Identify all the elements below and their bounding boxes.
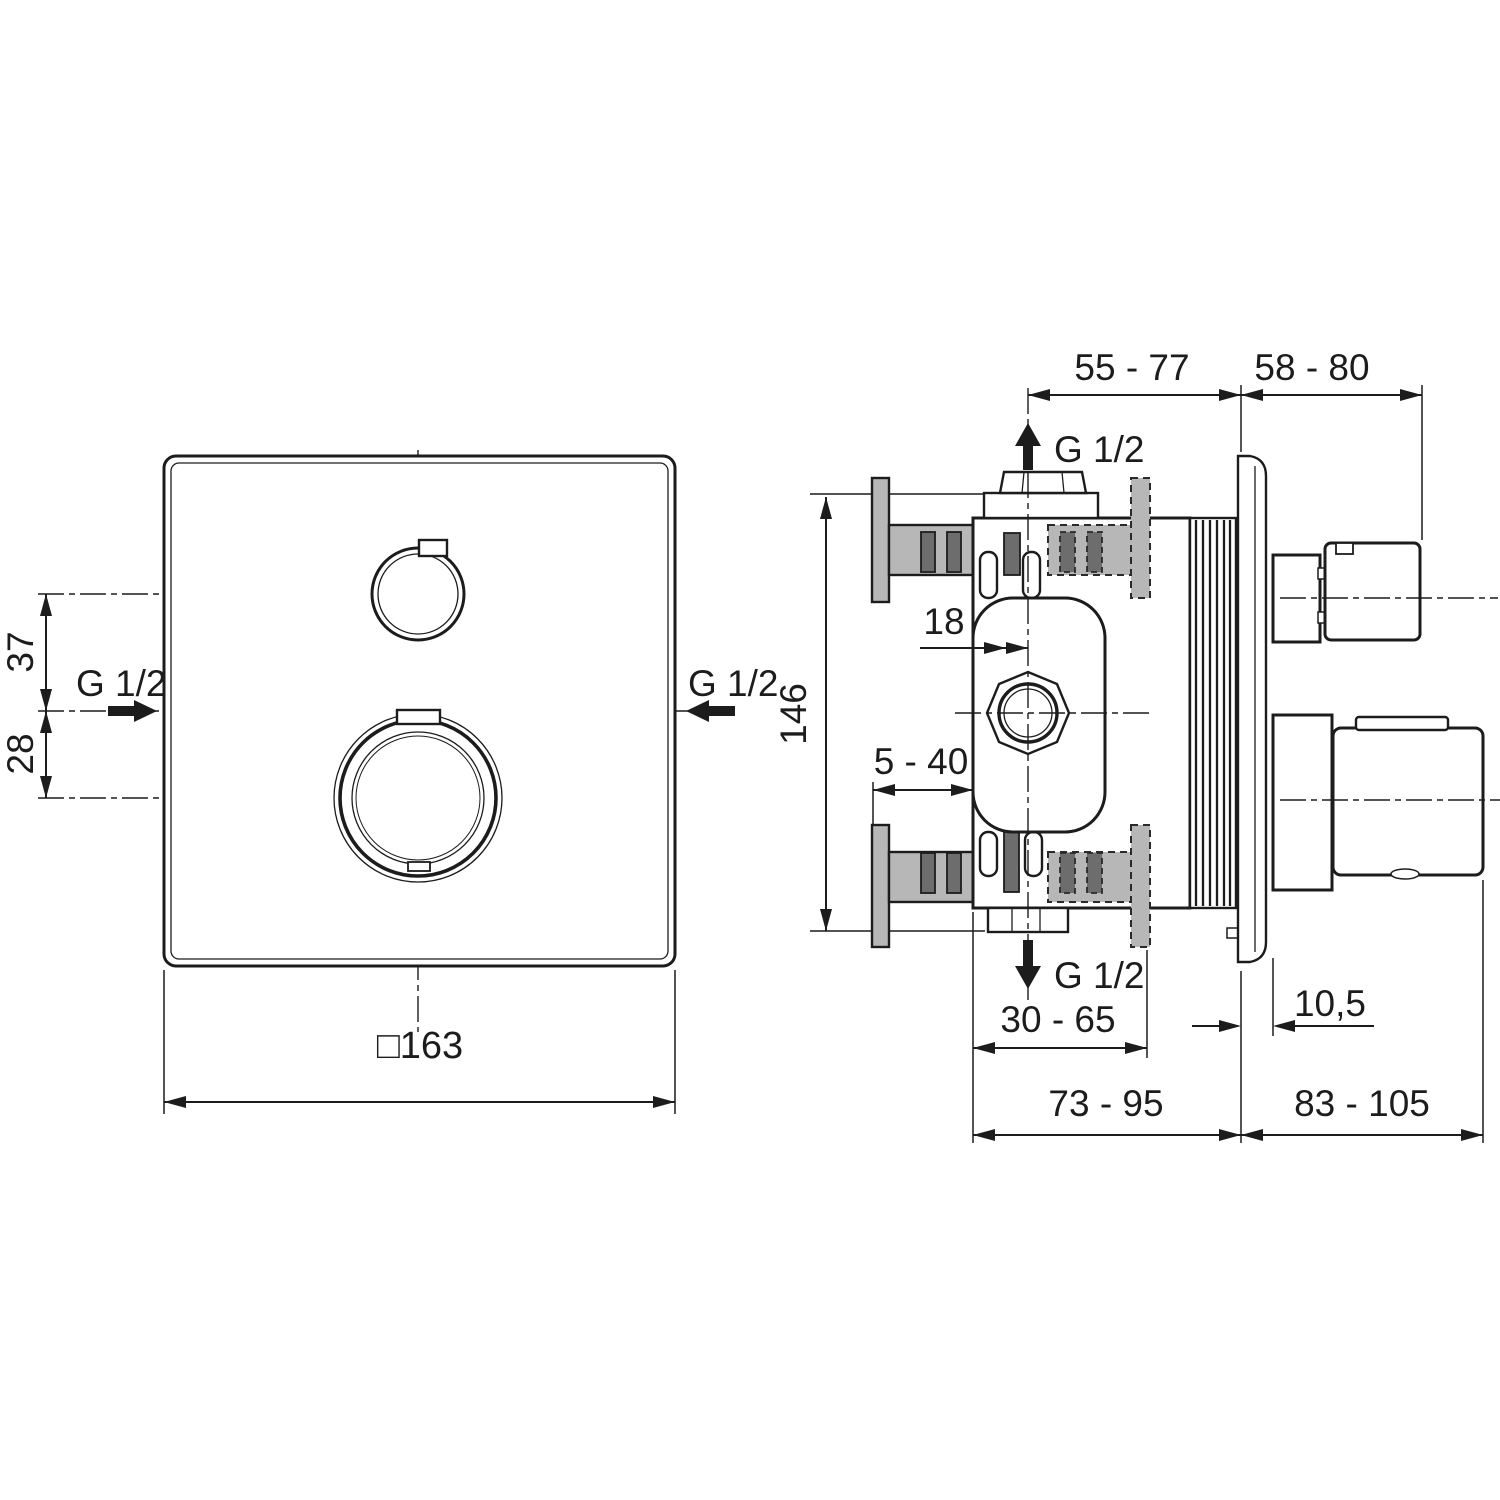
- lower-handle-grip: [1333, 728, 1483, 875]
- dim-label-58-80: 58 - 80: [1254, 347, 1369, 388]
- dim-label-30-65: 30 - 65: [1000, 999, 1115, 1040]
- lower-handle-stem: [1273, 715, 1332, 890]
- left-inlet-label: G 1/2: [76, 663, 167, 704]
- right-inlet-arrow-icon: [707, 706, 735, 716]
- top-outlet-connector: [984, 472, 1098, 518]
- lower-handle-clip: [1356, 717, 1448, 730]
- top-outlet-label: G 1/2: [1054, 429, 1145, 470]
- lower-knob-index-tab: [397, 710, 440, 724]
- front-view: 37 28 G 1/2 G 1/2 □163: [0, 450, 779, 1114]
- bracket-flange-right-top: [1131, 478, 1150, 598]
- thermostatic-mixer-dimension-drawing: 37 28 G 1/2 G 1/2 □163: [0, 0, 1500, 1500]
- dim-rough-in-depth: 55 - 77: [1028, 347, 1241, 401]
- mounting-bracket-top: [872, 478, 973, 602]
- right-inlet: G 1/2: [686, 663, 779, 722]
- dim-label-55-77: 55 - 77: [1074, 347, 1189, 388]
- threaded-collar: [1190, 518, 1236, 908]
- upper-handle: [1273, 543, 1420, 642]
- valve-body: [973, 472, 1190, 947]
- dim-label-163: □163: [377, 1025, 463, 1067]
- dim-body-height: 146: [773, 497, 832, 931]
- dim-plaster-depth: 5 - 40: [873, 741, 973, 796]
- technical-drawing-page: 37 28 G 1/2 G 1/2 □163: [0, 0, 1500, 1500]
- dim-body-depth: 30 - 65: [973, 999, 1147, 1054]
- upper-handle-grip: [1325, 543, 1420, 640]
- dim-inlet-offset: 28: [0, 711, 52, 798]
- left-inlet-arrow-icon: [108, 706, 136, 716]
- bracket-flange-left-top: [872, 478, 889, 602]
- dim-label-83-105: 83 - 105: [1294, 1083, 1430, 1124]
- upper-knob-index-tab: [419, 540, 447, 556]
- dim-label-28: 28: [0, 733, 41, 774]
- dim-upper-knob-offset: 37: [0, 594, 52, 711]
- dim-plate-width: □163: [164, 970, 675, 1114]
- dim-label-146: 146: [773, 683, 814, 745]
- top-outlet: G 1/2: [1015, 423, 1145, 470]
- bottom-outlet-label: G 1/2: [1054, 955, 1145, 996]
- right-inlet-label: G 1/2: [688, 663, 779, 704]
- dim-label-5-40: 5 - 40: [874, 741, 969, 782]
- bottom-outlet-arrow-icon: [1023, 940, 1033, 967]
- dim-trim-depth: 58 - 80: [1241, 347, 1422, 401]
- dim-label-37: 37: [0, 631, 41, 672]
- lower-handle: [1273, 715, 1483, 890]
- lower-knob-bottom-notch: [408, 862, 430, 871]
- dim-label-18: 18: [923, 601, 964, 642]
- mounting-bracket-bottom: [872, 825, 973, 947]
- dim-label-10-5: 10,5: [1294, 983, 1366, 1024]
- top-outlet-arrow-icon: [1023, 444, 1033, 470]
- dim-total-rough-depth: 73 - 95: [973, 1083, 1241, 1141]
- dim-total-trim-depth: 83 - 105: [1241, 1083, 1483, 1141]
- bracket-flange-right-bottom: [1131, 825, 1150, 947]
- side-view: 55 - 77 58 - 80 G 1/2 146 18: [773, 347, 1500, 1143]
- bracket-flange-left-bottom: [872, 825, 889, 947]
- dim-plate-offset: 10,5: [1192, 983, 1374, 1032]
- dim-label-73-95: 73 - 95: [1048, 1083, 1163, 1124]
- bottom-outlet: G 1/2: [1015, 940, 1145, 996]
- left-inlet: G 1/2: [76, 663, 167, 722]
